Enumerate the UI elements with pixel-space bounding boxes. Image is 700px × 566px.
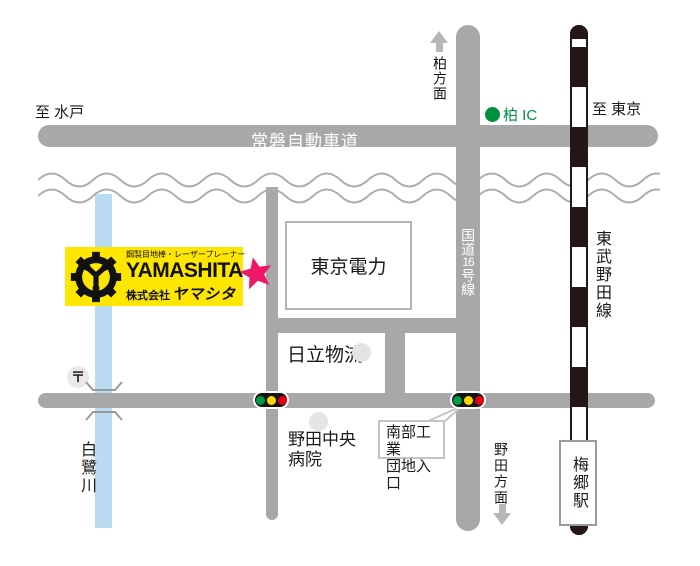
kashiwa-ic-label: 柏 IC <box>503 104 537 125</box>
arrow-up-icon <box>430 31 448 52</box>
bridge-marks-icon <box>84 378 124 424</box>
joban-expressway-label: 常磐自動車道 <box>245 127 365 152</box>
tobu-noda-line-label: 東武野田線 <box>589 230 613 320</box>
industrial-label-line1: 南部工業 <box>386 424 443 458</box>
kashiwa-ic: 柏 IC <box>485 104 537 125</box>
railway-top-cap <box>570 25 588 39</box>
direction-tokyo-label: 至 東京 <box>592 98 641 119</box>
direction-noda-label: 野田方面 <box>491 442 511 506</box>
yamashita-logo-box: 鋼製目地棒・レーザープレーナー YAMASHITA 株式会社 ヤマシタ <box>65 247 243 306</box>
connector-road-vertical <box>385 318 405 398</box>
umesato-station-label: 梅郷駅 <box>566 456 590 510</box>
noda-central-hospital-label: 野田中央 病院 <box>288 430 356 470</box>
interchange-dot-icon <box>485 107 500 122</box>
access-map: 常磐自動車道 国道 16 号線 東武野田線 梅郷駅 至 水戸 至 東京 柏方面 … <box>0 0 700 566</box>
connector-road-upper <box>266 318 468 333</box>
river-wave-lines <box>38 164 660 208</box>
direction-kashiwa-label: 柏方面 <box>430 56 450 101</box>
hospital-label-line2: 病院 <box>288 450 356 470</box>
industrial-park-callout: 南部工業 団地入口 <box>378 420 445 459</box>
hospital-label-line1: 野田中央 <box>288 430 356 450</box>
route16-label: 国道 16 号線 <box>456 228 480 296</box>
direction-mito-label: 至 水戸 <box>35 101 84 122</box>
logo-text-block: 鋼製目地棒・レーザープレーナー YAMASHITA 株式会社 ヤマシタ <box>126 249 245 303</box>
industrial-label-line2: 団地入口 <box>386 458 443 492</box>
route16-label-part1: 国道 <box>461 228 475 256</box>
company-name-kana: ヤマシタ <box>172 283 236 304</box>
traffic-light-icon <box>452 393 484 407</box>
building-dot-icon <box>352 343 371 362</box>
location-star-icon <box>239 255 273 289</box>
plant-access-road <box>266 187 278 520</box>
route16-label-part2: 16 <box>462 256 473 268</box>
tepco-building-box: 東京電力 <box>285 221 412 310</box>
shirasagi-river-label: 白鷺川 <box>74 441 98 495</box>
gear-logo-icon <box>70 251 122 303</box>
company-name-prefix: 株式会社 <box>126 287 170 303</box>
building-dot-icon <box>309 412 328 431</box>
main-road <box>38 393 655 408</box>
route16-label-part3: 号線 <box>461 268 475 296</box>
post-office-symbol: 〒 <box>71 367 85 387</box>
company-name-en: YAMASHITA <box>126 260 245 282</box>
arrow-down-icon <box>493 504 511 525</box>
umesato-station-box: 梅郷駅 <box>559 440 597 526</box>
company-name-jp: 株式会社 ヤマシタ <box>126 283 245 304</box>
tepco-label: 東京電力 <box>310 252 386 279</box>
traffic-light-icon <box>255 393 287 407</box>
